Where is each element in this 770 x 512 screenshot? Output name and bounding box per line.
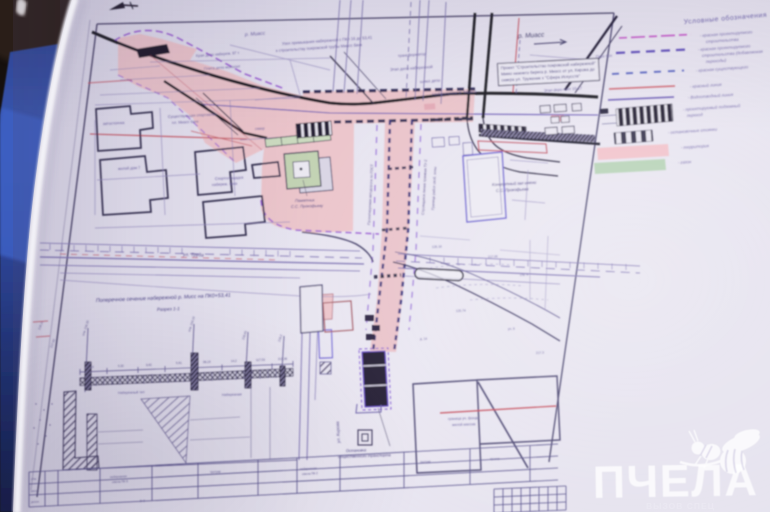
- svg-text:ВЫЗОВ СПЕЦ: ВЫЗОВ СПЕЦ: [646, 501, 715, 511]
